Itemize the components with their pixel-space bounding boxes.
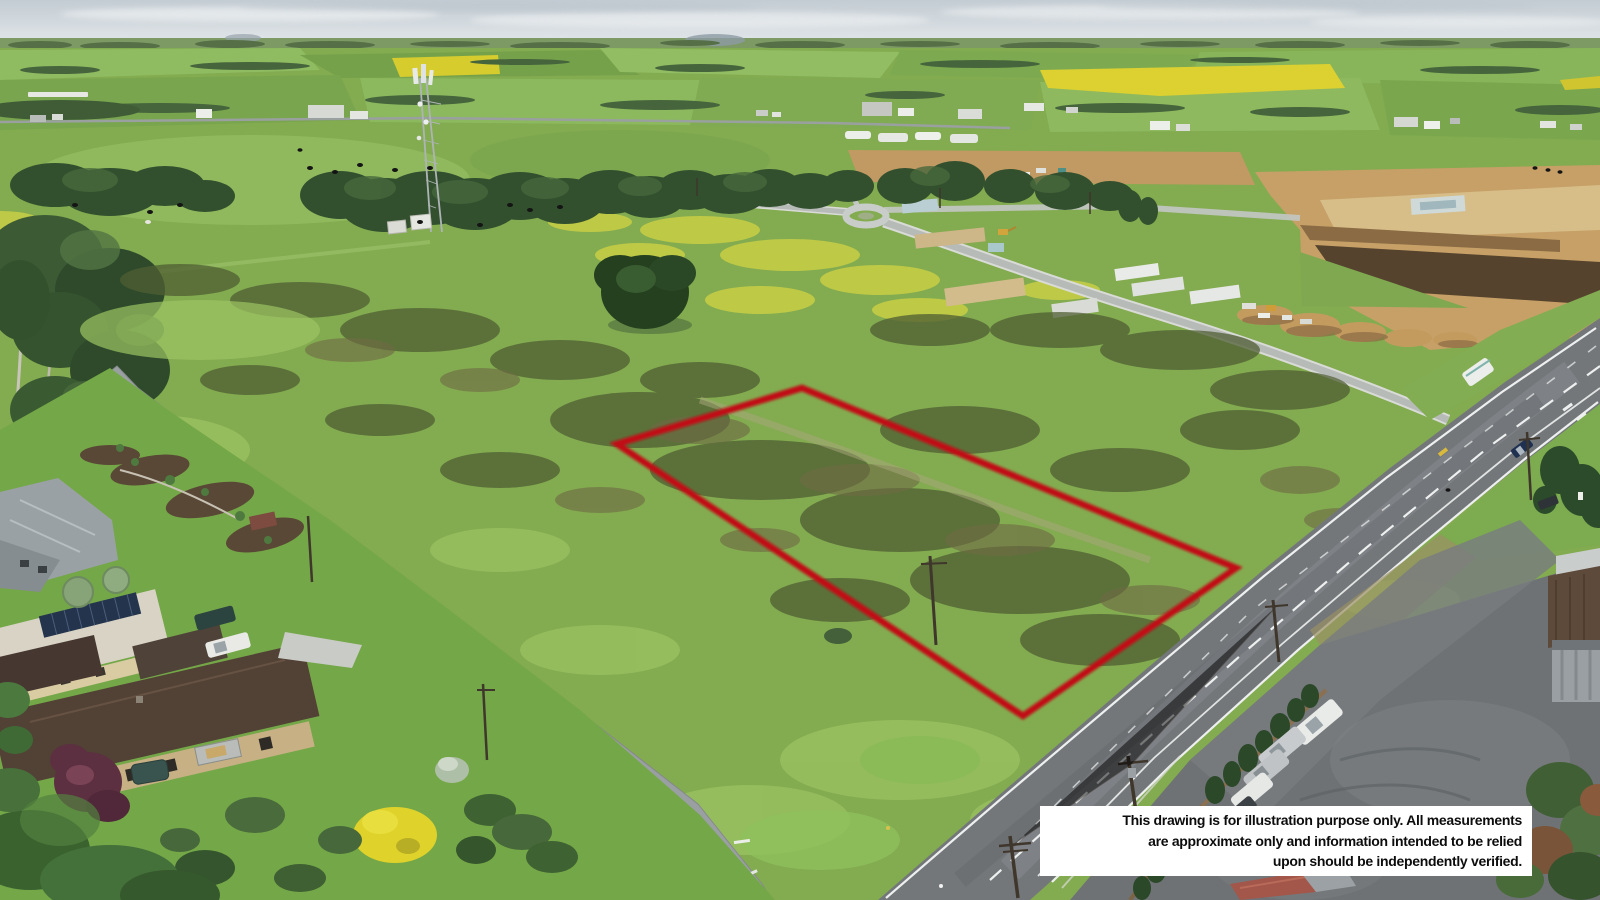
disclaimer-line: are approximate only and information int… — [1046, 831, 1522, 852]
disclaimer-line: This drawing is for illustration purpose… — [1046, 810, 1522, 831]
water-tank — [63, 577, 93, 607]
aerial-photo: This drawing is for illustration purpose… — [0, 0, 1600, 900]
water-tank — [103, 567, 129, 593]
aerial-photo-canvas — [0, 0, 1600, 900]
canola-field — [392, 55, 500, 77]
disclaimer-box: This drawing is for illustration purpose… — [1040, 806, 1532, 876]
roadside-sign — [1578, 492, 1583, 500]
disclaimer-line: upon should be independently verified. — [1046, 851, 1522, 872]
